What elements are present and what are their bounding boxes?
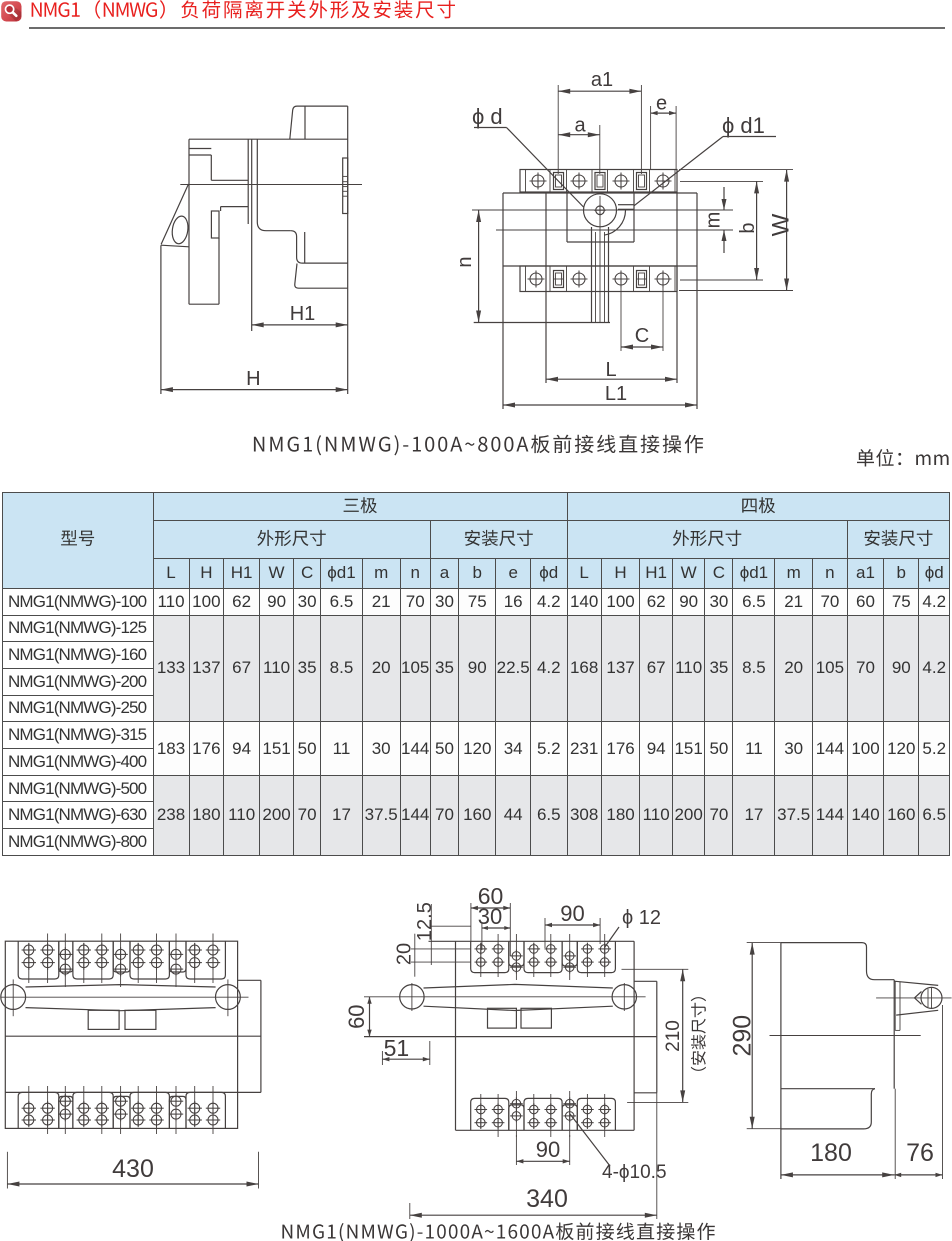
- svg-text:76: 76: [906, 1139, 934, 1167]
- svg-text:340: 340: [526, 1185, 568, 1213]
- svg-text:C: C: [635, 325, 649, 347]
- svg-text:a: a: [574, 115, 586, 137]
- svg-text:L: L: [605, 359, 616, 381]
- svg-text:60: 60: [344, 1004, 369, 1028]
- svg-text:210: 210: [663, 1020, 684, 1052]
- svg-text:n: n: [454, 256, 476, 267]
- svg-text:H1: H1: [290, 303, 316, 325]
- svg-text:a1: a1: [591, 69, 613, 91]
- svg-text:290: 290: [729, 1015, 757, 1057]
- svg-text:430: 430: [112, 1155, 154, 1183]
- svg-text:ϕ 12: ϕ 12: [622, 907, 661, 929]
- svg-text:b: b: [737, 222, 759, 233]
- svg-text:30: 30: [478, 904, 502, 929]
- svg-text:90: 90: [536, 1137, 560, 1162]
- svg-text:L1: L1: [605, 383, 627, 405]
- svg-text:W: W: [768, 213, 795, 236]
- svg-text:180: 180: [810, 1139, 852, 1167]
- svg-text:H: H: [246, 368, 260, 390]
- svg-text:12.5: 12.5: [414, 902, 436, 941]
- svg-text:51: 51: [384, 1035, 410, 1061]
- svg-text:ϕ d1: ϕ d1: [722, 113, 765, 138]
- svg-text:m: m: [703, 212, 725, 229]
- svg-text:e: e: [656, 93, 667, 115]
- svg-text:20: 20: [394, 943, 416, 965]
- svg-text:ϕ d: ϕ d: [472, 104, 503, 129]
- svg-text:90: 90: [560, 901, 584, 926]
